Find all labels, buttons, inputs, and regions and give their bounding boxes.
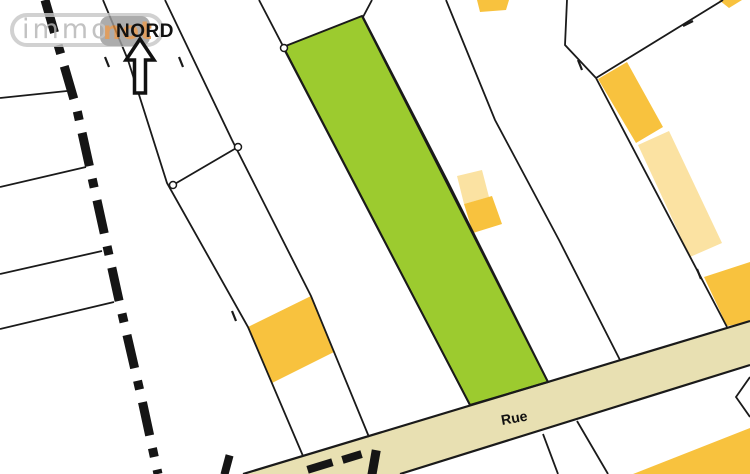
vertex-marker	[170, 182, 177, 189]
logo-text: immo	[22, 14, 111, 45]
vertex-marker	[235, 144, 242, 151]
north-label: NORD	[116, 21, 174, 42]
cadastral-map: immo not NORD Rue	[0, 0, 750, 474]
vertex-marker	[281, 45, 288, 52]
